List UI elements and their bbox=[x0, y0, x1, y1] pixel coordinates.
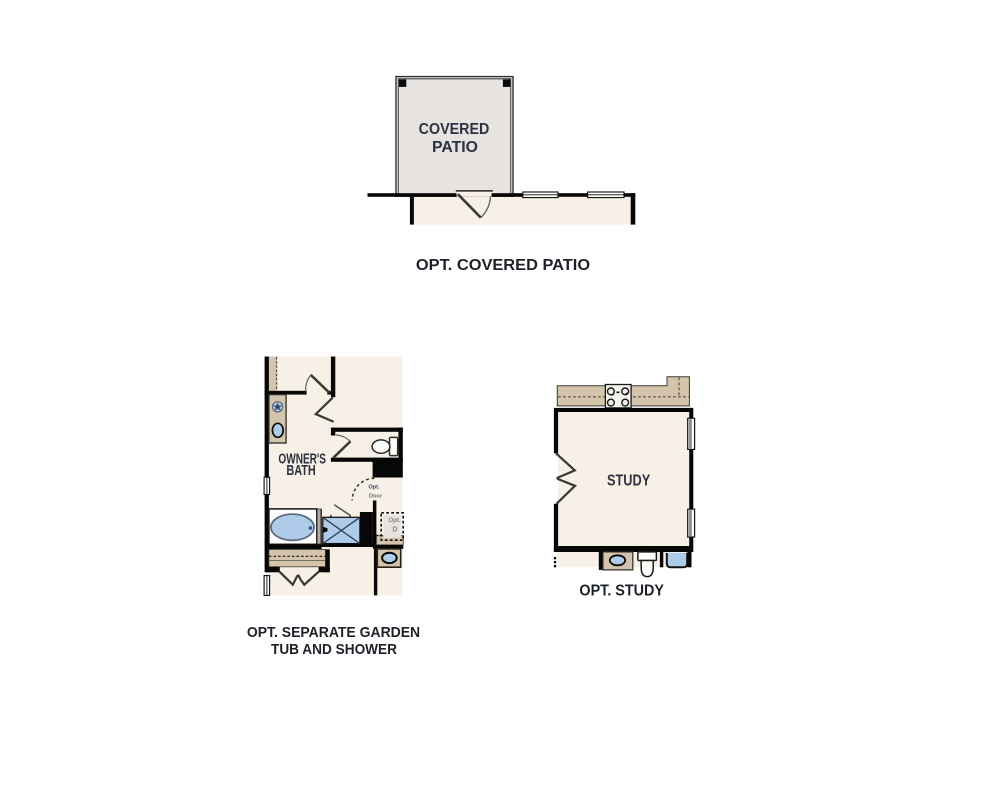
svg-text:OPT. SEPARATE GARDEN: OPT. SEPARATE GARDEN bbox=[247, 624, 420, 641]
svg-text:STUDY: STUDY bbox=[607, 473, 650, 490]
svg-text:PATIO: PATIO bbox=[432, 139, 478, 156]
svg-text:D: D bbox=[392, 525, 397, 534]
svg-text:BATH: BATH bbox=[286, 463, 315, 479]
svg-text:Door: Door bbox=[369, 493, 383, 499]
svg-text:Opt.: Opt. bbox=[368, 484, 380, 490]
svg-text:OPT. COVERED PATIO: OPT. COVERED PATIO bbox=[416, 257, 590, 274]
svg-text:OPT. STUDY: OPT. STUDY bbox=[579, 583, 664, 600]
svg-text:TUB AND SHOWER: TUB AND SHOWER bbox=[271, 641, 397, 658]
svg-text:COVERED: COVERED bbox=[419, 121, 490, 138]
svg-text:Opt.: Opt. bbox=[388, 517, 401, 524]
